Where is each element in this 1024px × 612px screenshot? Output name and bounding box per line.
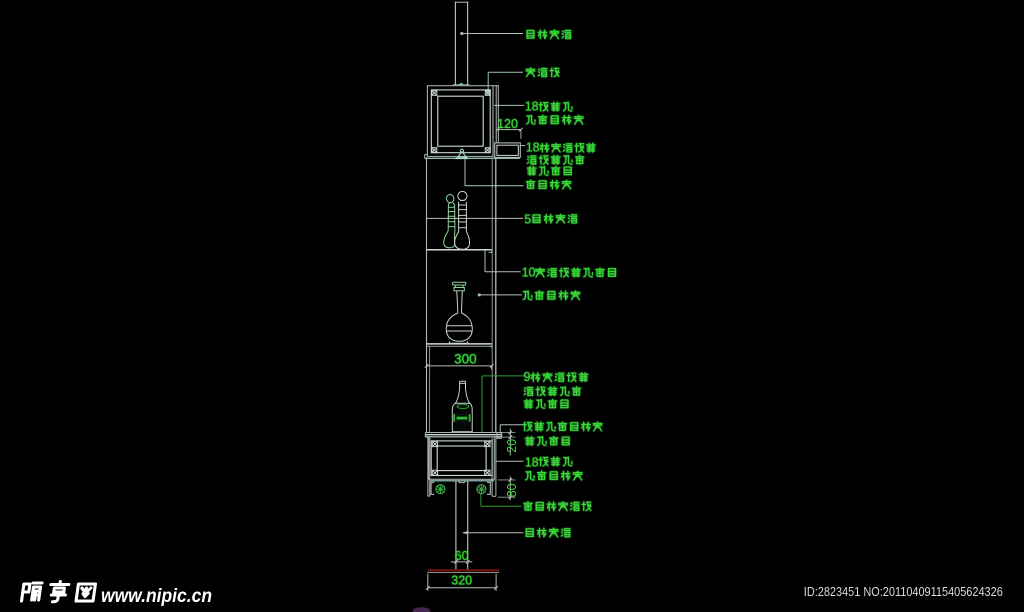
svg-text:18: 18 [525, 100, 539, 114]
svg-text:18: 18 [525, 455, 539, 469]
svg-text:10: 10 [522, 266, 536, 280]
svg-text:20: 20 [505, 439, 519, 453]
svg-text:5: 5 [524, 212, 531, 226]
svg-text:320: 320 [451, 574, 472, 588]
svg-text:ID:2823451 NO:2011040911540562: ID:2823451 NO:20110409115405624326 [804, 584, 1003, 599]
svg-text:18: 18 [526, 141, 540, 155]
svg-text:9: 9 [524, 370, 531, 384]
svg-text:80: 80 [505, 483, 519, 497]
svg-text:120: 120 [497, 117, 518, 131]
svg-text:www.nipic.cn: www.nipic.cn [101, 586, 212, 607]
svg-text:300: 300 [454, 351, 477, 366]
